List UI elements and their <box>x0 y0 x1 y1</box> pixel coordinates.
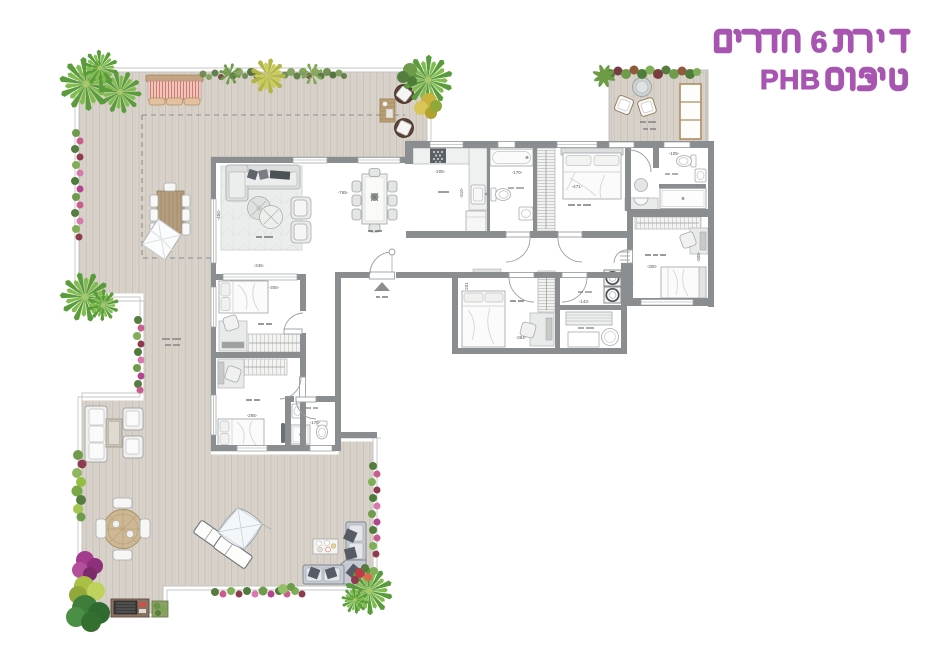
svg-text:-143-: -143- <box>579 299 590 304</box>
svg-text:-345-: -345- <box>254 263 265 268</box>
svg-text:-310-: -310- <box>459 187 464 198</box>
svg-text:6: 6 <box>811 26 828 59</box>
svg-text:-450-: -450- <box>216 209 221 220</box>
svg-text:-305-: -305- <box>269 285 280 290</box>
svg-text:-471-: -471- <box>572 184 583 189</box>
svg-text:-265-: -265- <box>247 413 258 418</box>
svg-text:-364-: -364- <box>516 335 527 340</box>
svg-text:-765-: -765- <box>338 190 349 195</box>
svg-text:-205-: -205- <box>435 169 446 174</box>
svg-text:-170-: -170- <box>310 420 321 425</box>
svg-text:PHB: PHB <box>760 64 821 95</box>
svg-text:-308-: -308- <box>696 251 701 262</box>
svg-text:201: 201 <box>464 282 469 290</box>
svg-text:-105-: -105- <box>669 151 680 156</box>
svg-text:-170-: -170- <box>512 170 523 175</box>
svg-text:-300-: -300- <box>647 264 658 269</box>
